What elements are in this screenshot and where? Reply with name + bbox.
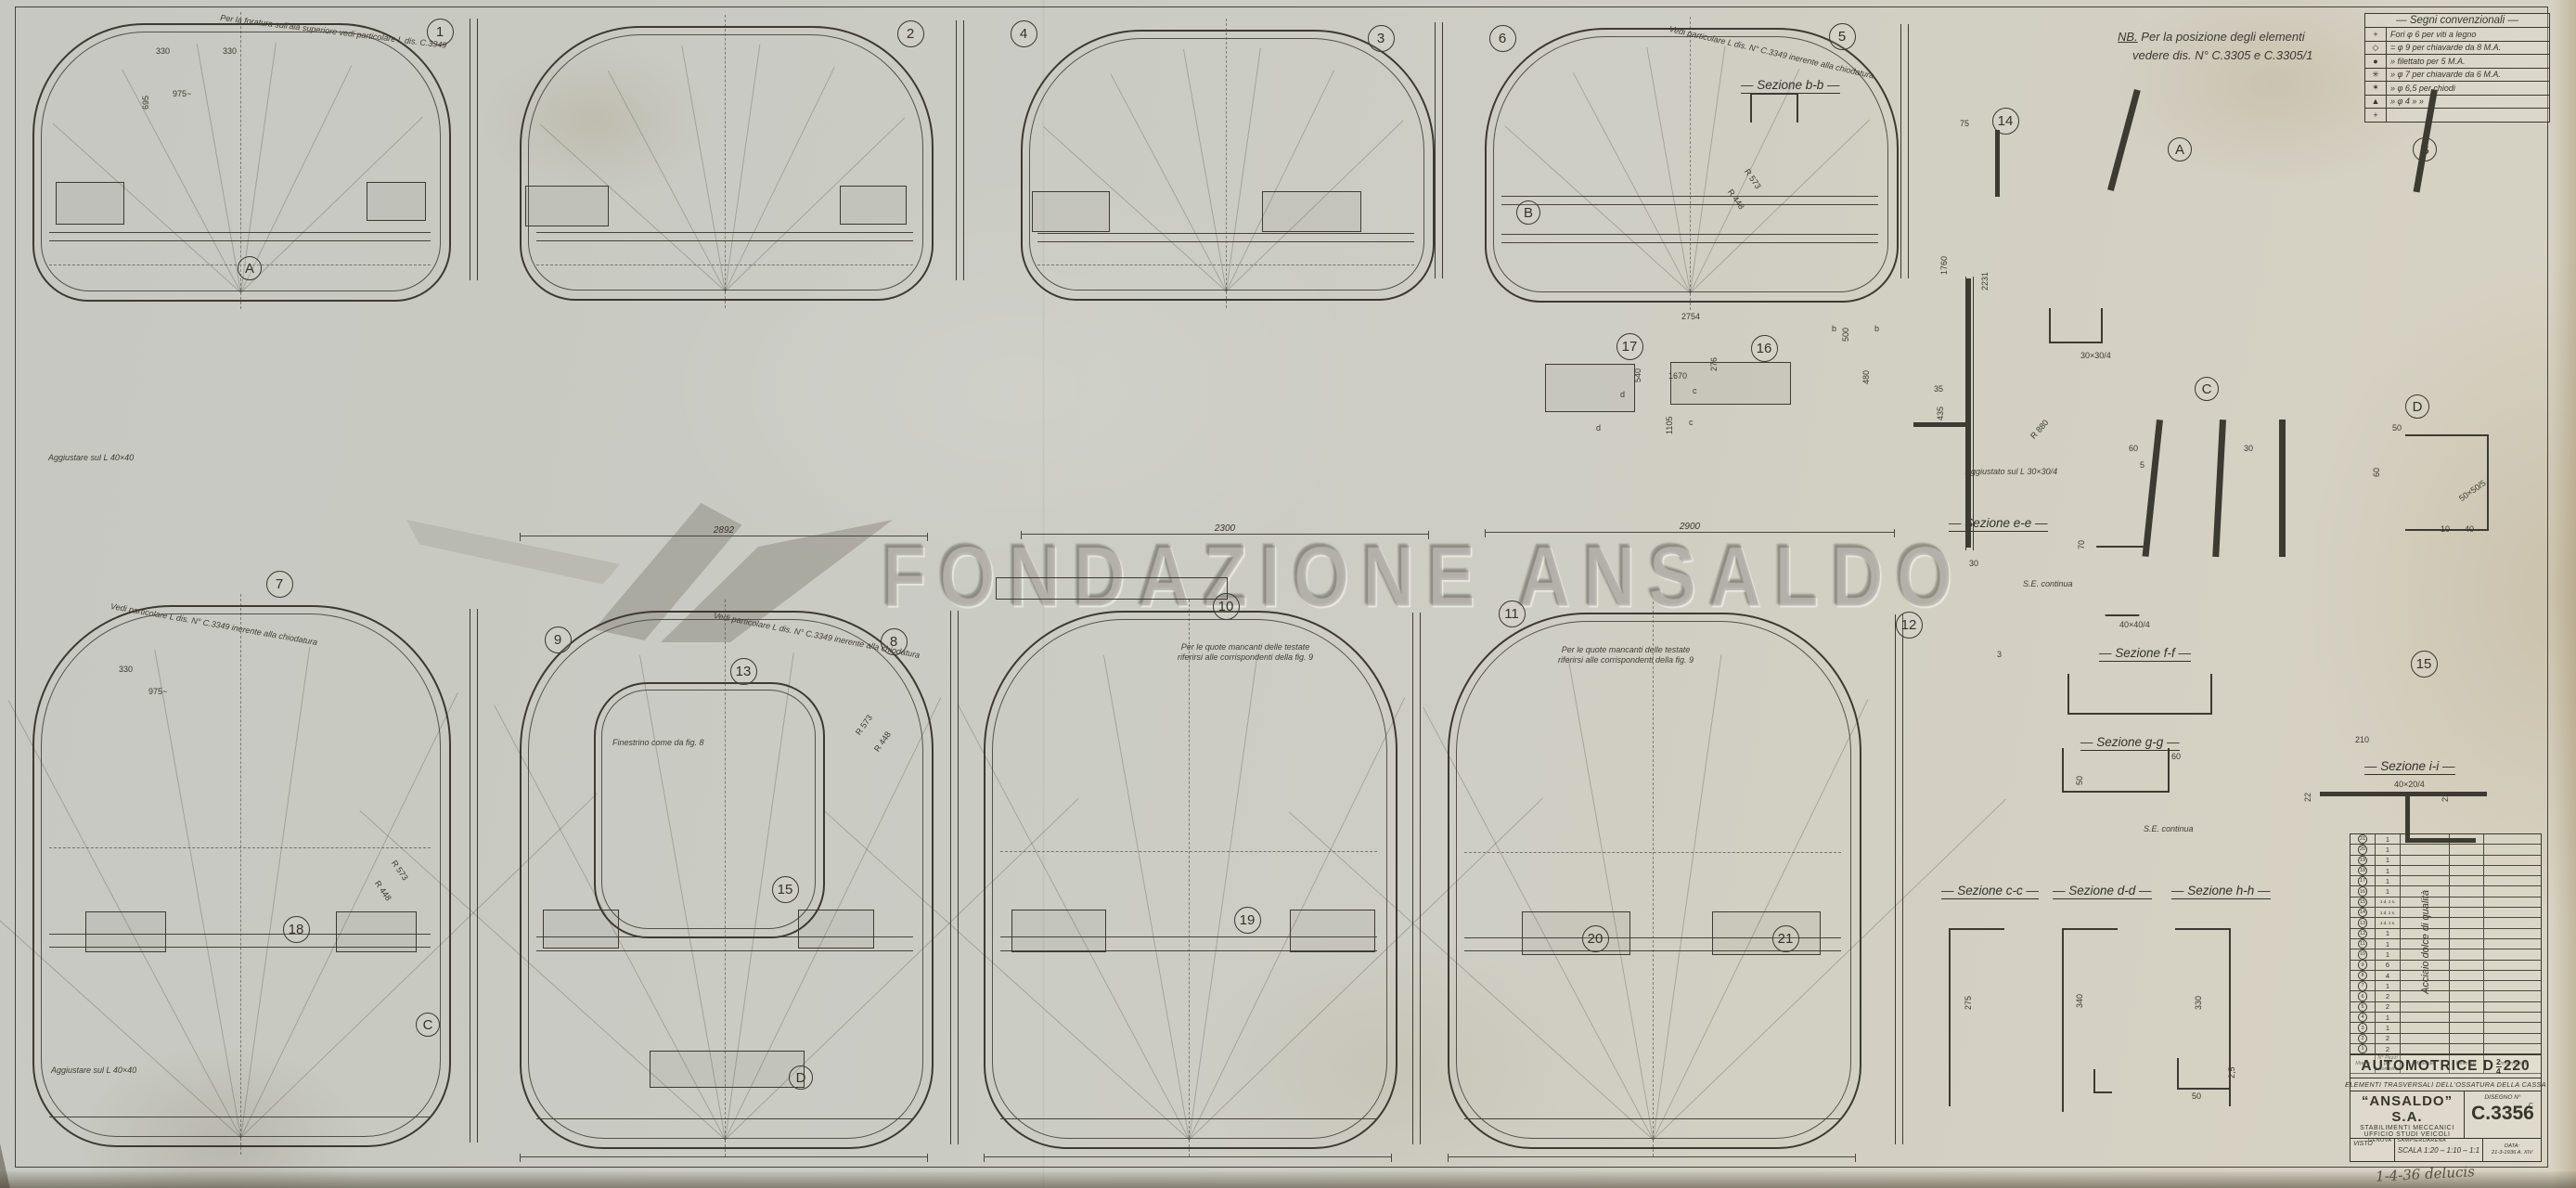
part-marca: 6 bbox=[2351, 991, 2376, 1001]
callout-c: C bbox=[416, 1013, 440, 1037]
part-marca: 13 bbox=[2351, 918, 2376, 927]
legend-row: ✶» φ 6,5 per chiodi bbox=[2365, 82, 2549, 96]
reinforcement-plate bbox=[1712, 911, 1821, 955]
part-peso bbox=[2450, 939, 2484, 949]
frame-9-beam bbox=[536, 950, 914, 951]
frame-4-beam bbox=[1501, 242, 1879, 243]
drawing-number-label: DISEGNO N° bbox=[2465, 1094, 2541, 1101]
part-marca-circle: 20 bbox=[2358, 845, 2368, 854]
profile-bar bbox=[1965, 278, 1971, 548]
legend-row: ◇= φ 9 per chiavarde da 8 M.A. bbox=[2365, 42, 2549, 56]
part-marca-circle: 3 bbox=[2358, 1023, 2368, 1032]
part-materiale bbox=[2401, 1044, 2450, 1053]
part-marca: 4 bbox=[2351, 1013, 2376, 1022]
drawing-number-sup: C bbox=[2529, 1103, 2533, 1109]
part-marca-circle: 14 bbox=[2358, 908, 2368, 917]
title-text: AUTOMOTRICE D bbox=[2361, 1058, 2494, 1075]
profile-strip bbox=[1435, 22, 1443, 278]
dimension-text: 330 bbox=[223, 46, 237, 56]
scala-cell: SCALA 1:20 – 1:10 – 1:1 bbox=[2395, 1139, 2483, 1161]
watermark-logo-icon bbox=[406, 520, 620, 631]
part-marca: 20 bbox=[2351, 845, 2376, 854]
part-osservazioni bbox=[2484, 949, 2541, 959]
callout-a: A bbox=[238, 256, 262, 280]
section-label-sezione-i-i: — Sezione i-i — bbox=[2364, 759, 2455, 775]
part-marca: 10 bbox=[2351, 949, 2376, 959]
annotation-note: Aggiustare sul L 40×40 bbox=[48, 453, 134, 462]
frame-7-beam bbox=[49, 1117, 431, 1117]
frame-10-beam bbox=[1464, 852, 1842, 853]
part-marca-circle: 6 bbox=[2358, 991, 2368, 1001]
part-osservazioni bbox=[2484, 981, 2541, 990]
part-peso bbox=[2450, 949, 2484, 959]
frame-4-beam bbox=[1501, 204, 1879, 205]
dimension-text: 330 bbox=[156, 46, 170, 56]
part-qty: 1 d. 1 s. bbox=[2376, 908, 2401, 917]
callout-7: 7 bbox=[266, 571, 293, 598]
legend-symbol-icon: + bbox=[2365, 28, 2387, 41]
part-osservazioni bbox=[2484, 1013, 2541, 1022]
parts-table: 211201191181171161151 d. 1 s.141 d. 1 s.… bbox=[2350, 833, 2542, 1074]
profile-bar bbox=[2212, 420, 2226, 557]
reinforcement-plate bbox=[650, 1051, 805, 1088]
part-osservazioni bbox=[2484, 876, 2541, 885]
reinforcement-plate bbox=[543, 910, 619, 949]
part-osservazioni bbox=[2484, 897, 2541, 907]
part-qty: 1 bbox=[2376, 929, 2401, 938]
part-peso bbox=[2450, 908, 2484, 917]
part-osservazioni bbox=[2484, 908, 2541, 917]
part-marca: 12 bbox=[2351, 929, 2376, 938]
part-marca-circle: 1 bbox=[2358, 1044, 2368, 1053]
company-dept1: STABILIMENTI MECCANICI bbox=[2351, 1125, 2464, 1131]
part-osservazioni bbox=[2484, 918, 2541, 927]
data-value: 21-3-1936 A. XIV bbox=[2492, 1150, 2532, 1156]
reinforcement-plate bbox=[367, 182, 426, 221]
part-peso bbox=[2450, 845, 2484, 854]
legend-segni-convenzionali: — Segni convenzionali — +Fori φ 6 per vi… bbox=[2364, 13, 2550, 123]
part-qty: 1 bbox=[2376, 1023, 2401, 1032]
callout-6: 6 bbox=[1489, 25, 1516, 52]
legend-row-text: » φ 7 per chiavarde da 6 M.A. bbox=[2387, 70, 2549, 79]
dimension-line: 2900 bbox=[1485, 532, 1895, 533]
reinforcement-plate bbox=[85, 911, 166, 952]
paper-edge-bottom bbox=[0, 1171, 2576, 1188]
profile-abl bbox=[2093, 1069, 2112, 1093]
part-marca-circle: 7 bbox=[2358, 981, 2368, 990]
part-peso bbox=[2450, 866, 2484, 875]
part-osservazioni bbox=[2484, 939, 2541, 949]
material-vertical-label: Acciaio dolce di qualità bbox=[2404, 842, 2447, 1042]
dimension-text: 435 bbox=[1936, 407, 1945, 420]
profile-cu bbox=[2067, 674, 2212, 715]
part-qty: 1 bbox=[2376, 856, 2401, 865]
part-osservazioni bbox=[2484, 991, 2541, 1001]
reinforcement-plate bbox=[1290, 910, 1375, 952]
legend-row: + bbox=[2365, 109, 2549, 122]
part-osservazioni bbox=[2484, 1034, 2541, 1043]
profile-strip bbox=[1412, 613, 1421, 1144]
legend-row: ✳» φ 7 per chiavarde da 6 M.A. bbox=[2365, 69, 2549, 83]
frame-7-beam bbox=[49, 847, 431, 848]
part-qty: 1 d. 1 s. bbox=[2376, 897, 2401, 907]
reinforcement-plate bbox=[1545, 364, 1635, 412]
legend-title: — Segni convenzionali — bbox=[2365, 14, 2549, 28]
profile-box bbox=[996, 577, 1228, 600]
reinforcement-plate bbox=[56, 182, 124, 225]
dimension-text: 1760 bbox=[1939, 256, 1949, 275]
dimension-text: 2754 bbox=[1681, 312, 1700, 321]
part-marca: 5 bbox=[2351, 1002, 2376, 1012]
section-label-sezione-h-h: — Sezione h-h — bbox=[2171, 884, 2271, 899]
callout-a: A bbox=[2168, 137, 2192, 161]
part-qty: 1 bbox=[2376, 981, 2401, 990]
legend-row-text: = φ 9 per chiavarde da 8 M.A. bbox=[2387, 43, 2549, 52]
data-cell: DATA: 21-3-1936 A. XIV bbox=[2483, 1139, 2541, 1161]
frame-4-beam bbox=[1501, 234, 1879, 235]
profile-bar bbox=[2107, 89, 2141, 191]
reinforcement-plate bbox=[840, 186, 907, 225]
part-qty: 6 bbox=[2376, 961, 2401, 970]
dimension-text: 695 bbox=[141, 96, 150, 110]
profile-strip bbox=[1895, 614, 1903, 1144]
callout-15: 15 bbox=[772, 876, 799, 903]
company-dept2: UFFICIO STUDI VEICOLI bbox=[2351, 1131, 2464, 1138]
legend-row-text: Fori φ 6 per viti a legno bbox=[2387, 30, 2549, 39]
part-marca-circle: 11 bbox=[2358, 939, 2368, 949]
part-marca-circle: 21 bbox=[2358, 834, 2368, 844]
part-osservazioni bbox=[2484, 971, 2541, 980]
frame-4-centerline bbox=[1690, 17, 1691, 310]
legend-row-text: » filettato per 5 M.A. bbox=[2387, 57, 2549, 66]
dimension-text: 70 bbox=[2077, 540, 2086, 549]
legend-row-text: » φ 4 » » bbox=[2387, 97, 2549, 106]
dimension-text: 30 bbox=[1969, 559, 1978, 568]
profile-bar bbox=[2279, 420, 2286, 557]
parts-table-rows: 211201191181171161151 d. 1 s.141 d. 1 s.… bbox=[2351, 834, 2541, 1054]
drawing-title: AUTOMOTRICE D 2 4 220 bbox=[2351, 1055, 2541, 1078]
part-marca: 18 bbox=[2351, 866, 2376, 875]
legend-symbol-icon: ✶ bbox=[2365, 82, 2387, 95]
part-marca: 11 bbox=[2351, 939, 2376, 949]
annotation-note: S.E. continua bbox=[2144, 824, 2194, 833]
profile-col bbox=[2405, 434, 2489, 531]
section-label-sezione-b-b: — Sezione b-b — bbox=[1741, 78, 1840, 94]
dimension-text: 40×40/4 bbox=[2119, 620, 2150, 629]
dimension-text: 40×20/4 bbox=[2394, 780, 2425, 789]
callout-3: 3 bbox=[1368, 25, 1395, 52]
frame-10-beam bbox=[1464, 1118, 1842, 1119]
legend-symbol-icon: ◇ bbox=[2365, 42, 2387, 55]
dimension-line bbox=[984, 1156, 1392, 1157]
frame-8-centerline bbox=[1189, 600, 1190, 1156]
dimension-line: 2300 bbox=[1021, 534, 1429, 535]
drawing-subtitle: ELEMENTI TRASVERSALI DELL'OSSATURA DELLA… bbox=[2351, 1078, 2541, 1091]
part-marca: 3 bbox=[2351, 1023, 2376, 1032]
profile-atl bbox=[1949, 928, 2004, 1106]
dimension-text: c bbox=[1689, 418, 1694, 427]
part-osservazioni bbox=[2484, 1002, 2541, 1012]
profile-bar bbox=[2320, 792, 2487, 796]
dimension-text: 60 bbox=[2171, 752, 2181, 761]
part-qty: 2 bbox=[2376, 1002, 2401, 1012]
callout-17: 17 bbox=[1616, 333, 1643, 360]
legend-rows: +Fori φ 6 per viti a legno◇= φ 9 per chi… bbox=[2365, 28, 2549, 122]
annotation-note: Aggiustato sul L 30×30/4 bbox=[1965, 467, 2057, 476]
annotation-note: S.E. continua bbox=[2023, 579, 2073, 588]
dimension-text: 5 bbox=[2140, 460, 2145, 470]
profile-strip bbox=[950, 611, 959, 1144]
dimension-line bbox=[1448, 1156, 1856, 1157]
part-osservazioni bbox=[2484, 1044, 2541, 1053]
section-label-sezione-c-c: — Sezione c-c — bbox=[1941, 884, 2039, 899]
profile-strip bbox=[470, 609, 478, 1143]
part-qty: 2 bbox=[2376, 991, 2401, 1001]
profile-strip bbox=[1900, 24, 1909, 278]
callout-18: 18 bbox=[283, 916, 310, 943]
part-marca-circle: 12 bbox=[2358, 929, 2368, 938]
section-label-sezione-d-d: — Sezione d-d — bbox=[2053, 884, 2152, 899]
part-marca-circle: 16 bbox=[2358, 886, 2368, 896]
dimension-text: 30×30/4 bbox=[2080, 351, 2111, 360]
nb-note-line1: Per la posizione degli elementi bbox=[2141, 30, 2304, 44]
frame-2-inner bbox=[528, 34, 923, 291]
frame-1-beam bbox=[49, 232, 431, 233]
callout-5: 5 bbox=[1829, 23, 1856, 50]
dimension-text: 2231 bbox=[1980, 272, 1990, 291]
part-osservazioni bbox=[2484, 834, 2541, 844]
part-peso bbox=[2450, 991, 2484, 1001]
nb-note: NB. Per la posizione degli elementi vede… bbox=[2118, 28, 2313, 64]
paper-edge-right bbox=[2552, 0, 2576, 1188]
profile-bar bbox=[2409, 838, 2476, 843]
frame-2-beam bbox=[536, 232, 914, 233]
dimension-text: 22 bbox=[2303, 793, 2312, 802]
callout-13: 13 bbox=[730, 658, 757, 685]
callout-b: B bbox=[1516, 200, 1540, 225]
part-marca-circle: 10 bbox=[2358, 949, 2368, 959]
part-qty: 1 bbox=[2376, 886, 2401, 896]
title-tail: 220 bbox=[2504, 1058, 2531, 1075]
callout-15: 15 bbox=[2411, 651, 2438, 678]
dimension-text: R 880 bbox=[2029, 418, 2051, 441]
reinforcement-plate bbox=[1670, 362, 1791, 405]
annotation-note: Finestrino come da fig. 8 bbox=[612, 738, 704, 747]
frame-8-beam bbox=[1000, 851, 1378, 852]
data-label: DATA: bbox=[2505, 1143, 2519, 1150]
part-peso bbox=[2450, 856, 2484, 865]
part-peso bbox=[2450, 886, 2484, 896]
frame-4-beam bbox=[1501, 196, 1879, 197]
reinforcement-plate bbox=[798, 910, 874, 949]
part-peso bbox=[2450, 981, 2484, 990]
part-marca: 9 bbox=[2351, 961, 2376, 970]
legend-row: ▲» φ 4 » » bbox=[2365, 96, 2549, 110]
part-peso bbox=[2450, 1044, 2484, 1053]
profile-bar bbox=[2143, 420, 2163, 557]
part-osservazioni bbox=[2484, 1023, 2541, 1032]
frame-3-inner bbox=[1029, 38, 1424, 291]
frame-2-beam bbox=[536, 240, 914, 241]
part-peso bbox=[2450, 876, 2484, 885]
dimension-text: 975~ bbox=[148, 687, 167, 696]
part-osservazioni bbox=[2484, 961, 2541, 970]
callout-2: 2 bbox=[897, 20, 924, 47]
part-peso bbox=[2450, 897, 2484, 907]
dimension-text: 50 bbox=[2392, 423, 2402, 433]
part-marca-circle: 2 bbox=[2358, 1034, 2368, 1043]
part-marca: 19 bbox=[2351, 856, 2376, 865]
part-marca-circle: 13 bbox=[2358, 918, 2368, 927]
profile-strip bbox=[956, 20, 964, 280]
part-marca: 16 bbox=[2351, 886, 2376, 896]
dimension-text: 60 bbox=[2372, 468, 2381, 477]
part-marca-circle: 17 bbox=[2358, 876, 2368, 885]
dimension-line bbox=[520, 1156, 928, 1157]
dimension-text: b bbox=[1832, 324, 1836, 333]
title-block: AUTOMOTRICE D 2 4 220 ELEMENTI TRASVERSA… bbox=[2350, 1054, 2542, 1162]
frame-4-inner bbox=[1493, 36, 1888, 292]
parts-table-row: 12 bbox=[2351, 1044, 2541, 1054]
part-qty: 1 bbox=[2376, 949, 2401, 959]
frame-3-beam bbox=[1037, 233, 1415, 234]
part-marca-circle: 8 bbox=[2358, 971, 2368, 980]
section-label-sezione-f-f: — Sezione f-f — bbox=[2099, 646, 2191, 662]
reinforcement-plate bbox=[525, 186, 609, 226]
profile-abl bbox=[2177, 1058, 2229, 1090]
drawing-number-cell: DISEGNO N° C C.3356 bbox=[2465, 1091, 2541, 1138]
part-marca: 15 bbox=[2351, 897, 2376, 907]
part-marca-circle: 5 bbox=[2358, 1002, 2368, 1012]
dimension-text: 975~ bbox=[173, 89, 191, 98]
part-osservazioni bbox=[2484, 856, 2541, 865]
dimension-text: 500 bbox=[1841, 328, 1850, 342]
part-marca-circle: 4 bbox=[2358, 1013, 2368, 1022]
part-qty: 1 bbox=[2376, 834, 2401, 844]
part-peso bbox=[2450, 1002, 2484, 1012]
part-marca: 8 bbox=[2351, 971, 2376, 980]
part-marca: 14 bbox=[2351, 908, 2376, 917]
part-qty: 1 bbox=[2376, 1013, 2401, 1022]
part-qty: 2 bbox=[2376, 1044, 2401, 1053]
profile-bar bbox=[2405, 794, 2410, 843]
reinforcement-plate bbox=[1522, 911, 1630, 955]
part-qty: 4 bbox=[2376, 971, 2401, 980]
part-peso bbox=[2450, 929, 2484, 938]
part-qty: 1 d. 1 s. bbox=[2376, 918, 2401, 927]
part-osservazioni bbox=[2484, 886, 2541, 896]
part-peso bbox=[2450, 918, 2484, 927]
frame-2-beam bbox=[536, 265, 914, 265]
dimension-text: 210 bbox=[2355, 735, 2369, 744]
frame-8-beam bbox=[1000, 1118, 1378, 1119]
legend-symbol-icon: ▲ bbox=[2365, 96, 2387, 109]
frame-10-centerline bbox=[1653, 601, 1654, 1156]
legend-symbol-icon: ● bbox=[2365, 55, 2387, 68]
dimension-text: 30 bbox=[2244, 444, 2253, 453]
part-marca-circle: 9 bbox=[2358, 961, 2368, 970]
fraction-bottom: 4 bbox=[2496, 1067, 2502, 1076]
callout-19: 19 bbox=[1234, 907, 1261, 934]
callout-9: 9 bbox=[545, 626, 572, 653]
frame-1-inner bbox=[41, 32, 441, 291]
reinforcement-plate bbox=[1011, 910, 1106, 952]
dimension-line: 2892 bbox=[520, 536, 928, 536]
visto-cell: VISTO bbox=[2351, 1139, 2395, 1161]
part-peso bbox=[2450, 1023, 2484, 1032]
profile-cu bbox=[2062, 748, 2170, 793]
part-marca: 17 bbox=[2351, 876, 2376, 885]
reinforcement-plate bbox=[1032, 191, 1110, 232]
part-qty: 1 bbox=[2376, 845, 2401, 854]
title-fraction: 2 4 bbox=[2496, 1058, 2502, 1075]
nb-note-prefix: NB. bbox=[2118, 30, 2138, 44]
section-label-sezione-e-e: — Sezione e-e — bbox=[1949, 516, 2048, 532]
part-marca: 21 bbox=[2351, 834, 2376, 844]
callout-11: 11 bbox=[1499, 600, 1526, 627]
part-osservazioni bbox=[2484, 929, 2541, 938]
part-peso bbox=[2450, 971, 2484, 980]
legend-row-text: » φ 6,5 per chiodi bbox=[2387, 84, 2549, 93]
company-name: “ANSALDO” S.A. bbox=[2351, 1093, 2464, 1125]
frame-7-centerline bbox=[240, 594, 241, 1155]
frame-9-beam bbox=[536, 1118, 914, 1119]
legend-row: ●» filettato per 5 M.A. bbox=[2365, 55, 2549, 69]
annotation-note: Per le quote mancanti delle testate rife… bbox=[1552, 645, 1700, 666]
annotation-note: Per le quote mancanti delle testate rife… bbox=[1171, 642, 1320, 664]
legend-symbol-icon: ✳ bbox=[2365, 69, 2387, 82]
part-osservazioni bbox=[2484, 866, 2541, 875]
frame-1-beam bbox=[49, 240, 431, 241]
part-marca-circle: 18 bbox=[2358, 866, 2368, 875]
reinforcement-plate bbox=[1262, 191, 1361, 232]
frame-3-beam bbox=[1037, 265, 1415, 265]
part-peso bbox=[2450, 961, 2484, 970]
dimension-text: 330 bbox=[119, 665, 133, 674]
part-osservazioni bbox=[2484, 845, 2541, 854]
dimension-text: 3 bbox=[1997, 650, 2002, 659]
profile-strip bbox=[470, 19, 478, 280]
frame-3-beam bbox=[1037, 241, 1415, 242]
drawing-sheet: FONDAZIONE ANSALDO NB. Per la posizione … bbox=[0, 0, 2576, 1188]
part-marca: 7 bbox=[2351, 981, 2376, 990]
dimension-text: 75 bbox=[1960, 119, 1969, 128]
callout-4: 4 bbox=[1011, 20, 1037, 47]
profile-bar bbox=[1995, 130, 2000, 197]
callout-d: D bbox=[2405, 394, 2429, 419]
callout-12: 12 bbox=[1896, 612, 1923, 639]
part-marca-circle: 19 bbox=[2358, 856, 2368, 865]
dimension-text: d bbox=[1596, 423, 1601, 433]
part-peso bbox=[2450, 1034, 2484, 1043]
callout-c: C bbox=[2195, 377, 2219, 401]
company-cell: “ANSALDO” S.A. STABILIMENTI MECCANICI UF… bbox=[2351, 1091, 2465, 1138]
part-qty: 1 bbox=[2376, 866, 2401, 875]
part-marca: 2 bbox=[2351, 1034, 2376, 1043]
part-qty: 2 bbox=[2376, 1034, 2401, 1043]
profile-bar bbox=[1913, 422, 1965, 427]
reinforcement-plate bbox=[336, 911, 417, 952]
part-marca-circle: 15 bbox=[2358, 897, 2368, 907]
nb-note-line2: vedere dis. N° C.3305 e C.3305/1 bbox=[2118, 48, 2313, 62]
dimension-text: 1105 bbox=[1665, 417, 1674, 434]
annotation-note: Aggiustare sul L 40×40 bbox=[51, 1065, 136, 1075]
part-qty: 1 bbox=[2376, 876, 2401, 885]
legend-symbol-icon: + bbox=[2365, 109, 2387, 122]
dimension-text: 480 bbox=[1861, 370, 1871, 384]
part-qty: 1 bbox=[2376, 939, 2401, 949]
dimension-text: 60 bbox=[2129, 444, 2138, 453]
